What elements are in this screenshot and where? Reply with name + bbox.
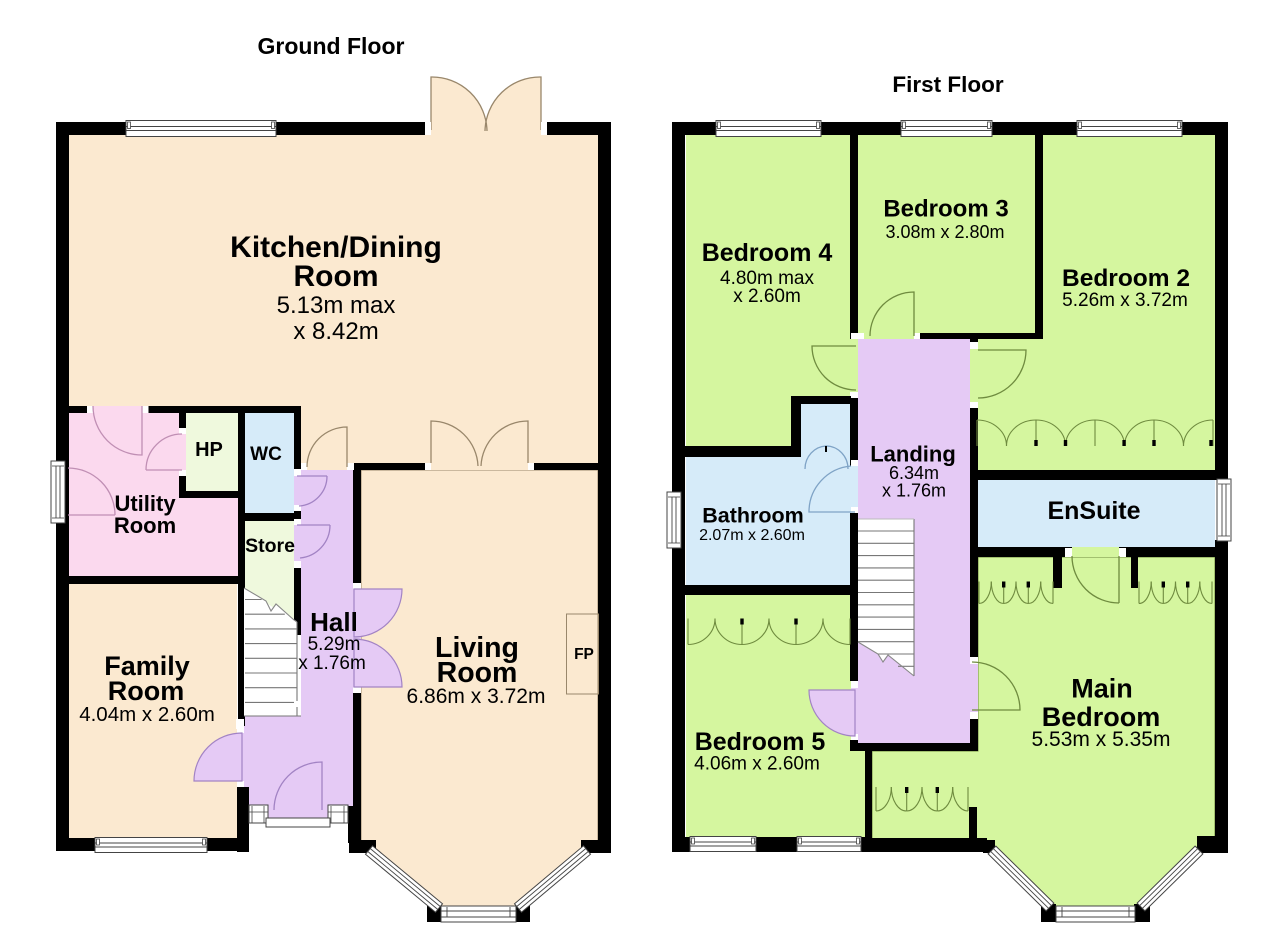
- svg-text:WC: WC: [250, 444, 282, 465]
- svg-text:Bedroom 2: Bedroom 2: [1062, 265, 1190, 292]
- svg-text:x 2.60m: x 2.60m: [733, 286, 801, 307]
- svg-text:Store: Store: [245, 535, 295, 557]
- svg-text:6.86m x 3.72m: 6.86m x 3.72m: [407, 685, 546, 708]
- svg-text:Bathroom: Bathroom: [702, 504, 804, 528]
- svg-text:2.07m x 2.60m: 2.07m x 2.60m: [699, 527, 805, 544]
- svg-text:x 1.76m: x 1.76m: [882, 481, 946, 501]
- svg-text:5.53m x 5.35m: 5.53m x 5.35m: [1032, 728, 1171, 751]
- svg-text:x 8.42m: x 8.42m: [293, 318, 378, 345]
- svg-text:4.04m x 2.60m: 4.04m x 2.60m: [79, 703, 215, 726]
- svg-text:Room: Room: [114, 513, 176, 538]
- svg-text:x 1.76m: x 1.76m: [298, 653, 366, 674]
- svg-text:HP: HP: [195, 439, 223, 461]
- svg-text:3.08m x 2.80m: 3.08m x 2.80m: [885, 222, 1004, 242]
- svg-text:Ground Floor: Ground Floor: [258, 33, 405, 59]
- svg-text:5.29m: 5.29m: [308, 634, 361, 655]
- svg-text:Bedroom 4: Bedroom 4: [702, 239, 833, 267]
- svg-text:5.26m x 3.72m: 5.26m x 3.72m: [1062, 290, 1188, 311]
- svg-text:4.06m x 2.60m: 4.06m x 2.60m: [694, 754, 820, 775]
- svg-text:Room: Room: [108, 676, 185, 706]
- svg-text:FP: FP: [574, 646, 594, 663]
- svg-text:5.13m max: 5.13m max: [277, 292, 396, 319]
- svg-text:EnSuite: EnSuite: [1047, 497, 1140, 525]
- svg-text:Bedroom 3: Bedroom 3: [883, 196, 1008, 223]
- svg-text:First Floor: First Floor: [892, 72, 1003, 97]
- svg-text:Room: Room: [294, 260, 379, 293]
- svg-text:Main: Main: [1071, 674, 1133, 704]
- svg-text:Bedroom 5: Bedroom 5: [695, 728, 826, 756]
- svg-text:Hall: Hall: [310, 607, 358, 637]
